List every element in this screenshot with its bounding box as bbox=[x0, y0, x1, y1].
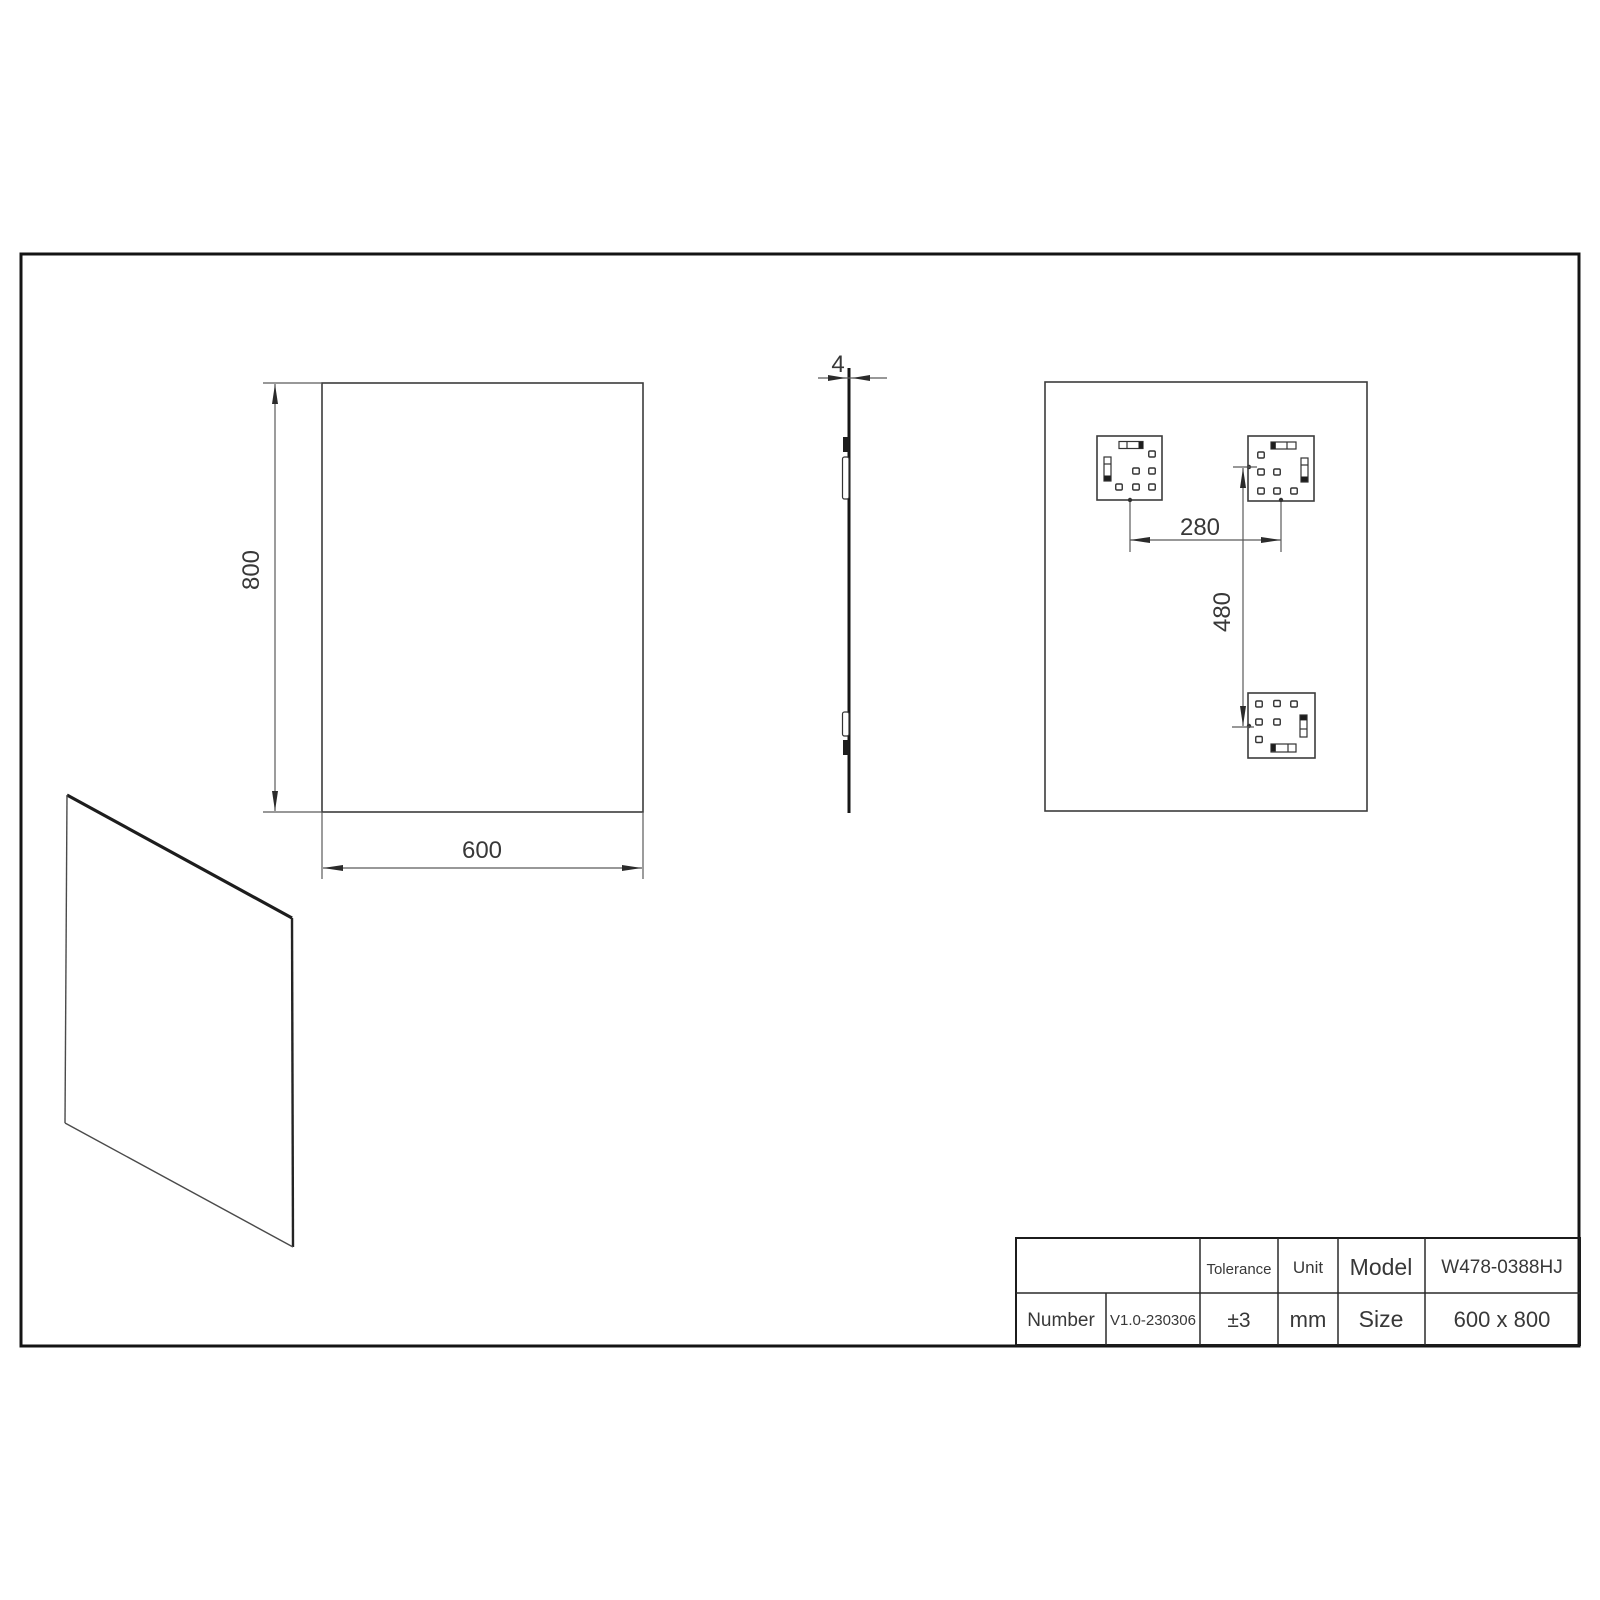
model-header: Model bbox=[1350, 1254, 1413, 1280]
arrow-left-icon bbox=[323, 865, 343, 871]
mirror-right-edge bbox=[292, 918, 293, 1247]
mirror-front-outline bbox=[322, 383, 643, 812]
tolerance-header: Tolerance bbox=[1206, 1261, 1271, 1278]
arrow-right-icon bbox=[622, 865, 642, 871]
title-block: Tolerance Unit Model W478-0388HJ Number … bbox=[1016, 1238, 1580, 1345]
dim-label-width: 600 bbox=[462, 837, 502, 864]
dimension-width-600: 600 bbox=[322, 812, 643, 879]
mounting-bracket-top-right bbox=[1247, 436, 1314, 502]
unit-header: Unit bbox=[1293, 1258, 1324, 1277]
bracket-profile-bottom bbox=[843, 740, 849, 755]
arrow-left-icon bbox=[852, 375, 870, 381]
arrow-up-icon bbox=[272, 384, 278, 404]
unit-value: mm bbox=[1290, 1307, 1327, 1332]
dim-label-thickness: 4 bbox=[831, 351, 844, 378]
mounting-bracket-top-left bbox=[1097, 436, 1162, 502]
mounting-bracket-bottom bbox=[1247, 693, 1315, 758]
size-header: Size bbox=[1359, 1306, 1404, 1332]
dimension-spacing-280: 280 bbox=[1130, 502, 1281, 552]
front-view: 800 600 bbox=[238, 383, 643, 879]
dimension-spacing-480: 480 bbox=[1209, 467, 1257, 727]
side-view: 4 bbox=[818, 351, 887, 813]
dimension-height-800: 800 bbox=[238, 383, 322, 812]
model-value: W478-0388HJ bbox=[1441, 1257, 1562, 1278]
arrow-left-icon bbox=[1130, 537, 1150, 543]
dimension-thickness-4: 4 bbox=[818, 351, 887, 381]
arrow-down-icon bbox=[1240, 706, 1246, 726]
perspective-view bbox=[65, 795, 293, 1247]
technical-drawing: 800 600 4 bbox=[0, 0, 1600, 1600]
arrow-up-icon bbox=[1240, 468, 1246, 488]
size-value: 600 x 800 bbox=[1454, 1307, 1551, 1332]
bracket-profile-top-clip bbox=[843, 457, 850, 499]
dim-label-height: 800 bbox=[238, 550, 265, 590]
bracket-profile-bottom-clip bbox=[843, 712, 850, 736]
dim-label-spacing-v: 480 bbox=[1209, 592, 1236, 632]
mirror-back-outline bbox=[1045, 382, 1367, 811]
dim-label-spacing-h: 280 bbox=[1180, 514, 1220, 541]
back-view: 280 480 bbox=[1045, 382, 1367, 811]
bracket-profile-top bbox=[843, 437, 849, 452]
tolerance-value: ±3 bbox=[1227, 1309, 1250, 1332]
number-header: Number bbox=[1027, 1310, 1095, 1331]
arrow-down-icon bbox=[272, 791, 278, 811]
drawing-sheet: 800 600 4 bbox=[0, 0, 1600, 1600]
number-value: V1.0-230306 bbox=[1110, 1312, 1196, 1329]
arrow-right-icon bbox=[1261, 537, 1281, 543]
